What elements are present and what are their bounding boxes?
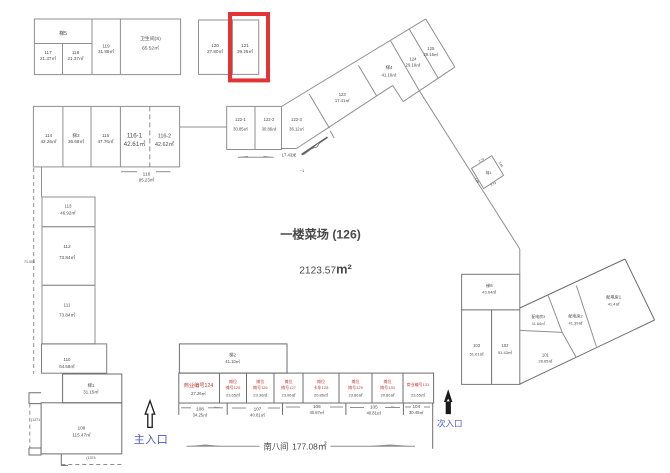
svg-text:116-1: 116-1	[127, 133, 143, 140]
svg-text:114: 114	[45, 133, 53, 138]
svg-text:23.65㎡: 23.65㎡	[411, 392, 425, 398]
svg-text:119: 119	[102, 44, 110, 49]
svg-text:摊号126: 摊号126	[253, 384, 268, 390]
svg-text:梯1: 梯1	[486, 170, 492, 175]
svg-text:121: 121	[241, 43, 249, 48]
svg-text:23.65㎡: 23.65㎡	[226, 392, 240, 398]
svg-text:商业编号131: 商业编号131	[407, 381, 430, 387]
svg-text:27.26㎡: 27.26㎡	[191, 390, 206, 396]
svg-text:21.37㎡: 21.37㎡	[40, 55, 56, 61]
svg-text:~1: ~1	[300, 168, 305, 173]
svg-text:(1374: (1374	[86, 456, 95, 460]
svg-text:梯5: 梯5	[59, 30, 67, 37]
svg-text:122-3: 122-3	[291, 117, 302, 122]
svg-text:51.43㎡: 51.43㎡	[498, 349, 512, 355]
svg-text:41.39㎡: 41.39㎡	[568, 320, 582, 326]
svg-text:梯3: 梯3	[72, 132, 80, 139]
svg-text:摊号127: 摊号127	[281, 384, 296, 390]
svg-text:41.10㎡: 41.10㎡	[225, 358, 240, 364]
svg-text:次入口: 次入口	[437, 418, 463, 428]
svg-text:17.43米: 17.43米	[282, 152, 297, 159]
svg-text:105: 105	[370, 405, 378, 410]
svg-text:47.76㎡: 47.76㎡	[97, 138, 113, 144]
svg-text:42.62㎡: 42.62㎡	[155, 140, 174, 148]
svg-text:118: 118	[72, 50, 80, 55]
svg-text:122-2: 122-2	[264, 117, 275, 122]
svg-text:102: 102	[502, 343, 510, 348]
svg-text:摊号125: 摊号125	[226, 384, 241, 390]
svg-text:43.64㎡: 43.64㎡	[482, 289, 496, 295]
svg-text:108: 108	[196, 407, 204, 412]
svg-text:177.08㎡: 177.08㎡	[292, 441, 327, 451]
svg-text:南八间: 南八间	[263, 441, 288, 451]
svg-text:36.12㎡: 36.12㎡	[289, 126, 304, 132]
svg-text:一楼菜场 (126): 一楼菜场 (126)	[280, 227, 361, 242]
svg-text:42.26㎡: 42.26㎡	[40, 138, 56, 144]
svg-text:40.81㎡: 40.81㎡	[366, 410, 381, 416]
svg-text:摊位: 摊位	[285, 378, 293, 384]
svg-text:30.45㎡: 30.45㎡	[409, 409, 424, 415]
svg-text:116-2: 116-2	[158, 134, 171, 140]
svg-text:104: 104	[412, 404, 420, 409]
svg-text:摊位: 摊位	[256, 378, 264, 384]
svg-text:17.41㎡: 17.41㎡	[335, 97, 350, 103]
svg-text:113: 113	[65, 204, 73, 209]
svg-text:摊号129: 摊号129	[348, 384, 363, 390]
svg-text:42.61㎡: 42.61㎡	[124, 140, 146, 148]
svg-text:20.86㎡: 20.86㎡	[314, 392, 328, 398]
svg-text:51.01㎡: 51.01㎡	[470, 351, 484, 357]
svg-text:125: 125	[427, 46, 435, 51]
svg-text:117: 117	[44, 50, 52, 55]
svg-text:31.89㎡: 31.89㎡	[98, 48, 114, 54]
svg-text:摊位: 摊位	[229, 378, 237, 384]
svg-text:124: 124	[410, 57, 418, 62]
svg-text:106: 106	[313, 404, 321, 409]
svg-text:108: 108	[78, 426, 86, 431]
svg-text:120: 120	[211, 43, 219, 48]
svg-text:23.86㎡: 23.86㎡	[348, 392, 362, 398]
svg-text:20.86㎡: 20.86㎡	[380, 392, 394, 398]
svg-text:110: 110	[64, 357, 72, 362]
svg-text:34.25㎡: 34.25㎡	[193, 412, 208, 418]
svg-text:103: 103	[473, 343, 481, 348]
svg-text:(1371: (1371	[31, 418, 40, 422]
svg-text:40.81㎡: 40.81㎡	[250, 412, 265, 418]
svg-text:摊位: 摊位	[317, 378, 325, 384]
svg-text:摊位: 摊位	[352, 378, 360, 384]
svg-text:商业编号124: 商业编号124	[184, 381, 214, 389]
svg-text:40.87㎡: 40.87㎡	[309, 409, 324, 415]
svg-text:配电房2: 配电房2	[568, 313, 583, 319]
svg-text:摊号130: 摊号130	[380, 384, 395, 390]
svg-text:73.84㎡: 73.84㎡	[59, 312, 75, 318]
svg-text:37.80㎡: 37.80㎡	[207, 48, 223, 54]
svg-text:21.37㎡: 21.37㎡	[67, 55, 83, 61]
svg-text:112: 112	[63, 244, 71, 249]
svg-text:卡车128: 卡车128	[314, 384, 329, 390]
svg-text:30.86㎡: 30.86㎡	[262, 126, 277, 132]
svg-text:梯1: 梯1	[88, 382, 95, 389]
svg-text:11.64㎡: 11.64㎡	[532, 321, 545, 326]
svg-text:107: 107	[254, 407, 262, 412]
svg-text:23.30㎡: 23.30㎡	[253, 392, 267, 398]
svg-text:111: 111	[64, 303, 71, 308]
svg-text:配电房1: 配电房1	[606, 294, 622, 301]
svg-text:29.19㎡: 29.19㎡	[406, 62, 421, 68]
svg-text:123: 123	[339, 92, 347, 97]
svg-text:摊位: 摊位	[384, 378, 392, 384]
svg-text:卫生间(S): 卫生间(S)	[140, 35, 161, 42]
svg-text:101: 101	[542, 353, 550, 358]
svg-text:主入口: 主入口	[134, 433, 169, 446]
svg-text:梯4: 梯4	[386, 64, 393, 71]
svg-text:36.68㎡: 36.68㎡	[68, 138, 84, 144]
svg-text:71.004: 71.004	[24, 260, 35, 264]
svg-text:41.16㎡: 41.16㎡	[382, 72, 397, 78]
svg-text:115: 115	[102, 133, 110, 138]
svg-text:122-1: 122-1	[235, 117, 246, 122]
svg-text:115.47㎡: 115.47㎡	[72, 432, 91, 438]
svg-text:41.4㎡: 41.4㎡	[608, 301, 620, 307]
svg-text:梯2: 梯2	[229, 352, 236, 359]
svg-text:73.84㎡: 73.84㎡	[59, 254, 75, 260]
svg-text:23.06㎡: 23.06㎡	[281, 392, 295, 398]
svg-text:39.25㎡: 39.25㎡	[237, 48, 253, 54]
svg-text:85.23㎡: 85.23㎡	[139, 177, 155, 183]
svg-text:46.92㎡: 46.92㎡	[60, 210, 76, 216]
svg-text:29.15㎡: 29.15㎡	[423, 51, 438, 57]
svg-text:64.58㎡: 64.58㎡	[59, 363, 75, 369]
svg-text:28.65㎡: 28.65㎡	[538, 358, 552, 364]
svg-text:31.15㎡: 31.15㎡	[83, 389, 99, 395]
svg-text:30.85㎡: 30.85㎡	[233, 126, 248, 132]
svg-text:65.52㎡: 65.52㎡	[142, 45, 159, 52]
svg-text:梯6: 梯6	[486, 282, 493, 289]
svg-text:配电房3: 配电房3	[532, 314, 546, 319]
